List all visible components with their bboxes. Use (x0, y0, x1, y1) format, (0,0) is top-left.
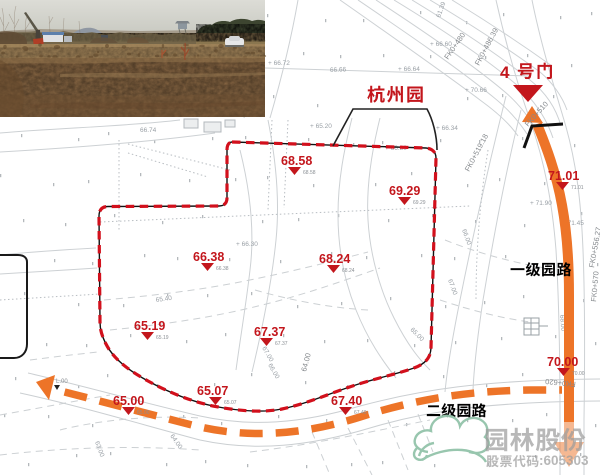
svg-text:71.01: 71.01 (548, 169, 579, 183)
svg-text:+ 71.90: + 71.90 (530, 200, 552, 207)
svg-text:65.19: 65.19 (156, 335, 169, 341)
svg-text::605303: :605303 (539, 453, 589, 468)
svg-text:67.37: 67.37 (275, 341, 288, 347)
svg-text:69.29: 69.29 (413, 200, 426, 206)
svg-text:71.01: 71.01 (571, 185, 584, 191)
svg-text:65.19: 65.19 (134, 319, 165, 333)
svg-text:65.00: 65.00 (113, 394, 144, 408)
svg-text:68.24: 68.24 (342, 268, 355, 274)
svg-text:67.40: 67.40 (331, 394, 362, 408)
svg-text:+ 70.66: + 70.66 (465, 87, 487, 94)
svg-text:+ 66.72: + 66.72 (268, 60, 290, 67)
svg-text:65.07: 65.07 (197, 384, 228, 398)
svg-text:68.58: 68.58 (303, 170, 316, 176)
svg-text:66.66: 66.66 (330, 66, 347, 74)
svg-text:70.00: 70.00 (572, 371, 585, 377)
svg-text:+ 66.34: + 66.34 (436, 125, 458, 132)
svg-text:66.74: 66.74 (140, 127, 157, 134)
svg-text:4: 4 (500, 63, 510, 82)
svg-text:FK0+570: FK0+570 (589, 271, 600, 302)
svg-text:+ 65.20: + 65.20 (310, 123, 332, 130)
svg-text:66.38: 66.38 (216, 266, 229, 272)
svg-text:68.24: 68.24 (319, 252, 350, 266)
svg-text:65.00: 65.00 (137, 410, 150, 416)
svg-text:67.40: 67.40 (354, 410, 367, 416)
svg-text:69.29: 69.29 (389, 184, 420, 198)
svg-text:+ 66.30: + 66.30 (236, 241, 258, 248)
svg-text:L.00: L.00 (56, 379, 68, 385)
svg-text:70.00: 70.00 (547, 355, 578, 369)
svg-text:67.37: 67.37 (254, 325, 285, 339)
svg-text:65.07: 65.07 (224, 400, 237, 406)
svg-text:+ 66.64: + 66.64 (398, 66, 420, 73)
svg-text:68.58: 68.58 (281, 154, 312, 168)
svg-text:66.38: 66.38 (193, 250, 224, 264)
